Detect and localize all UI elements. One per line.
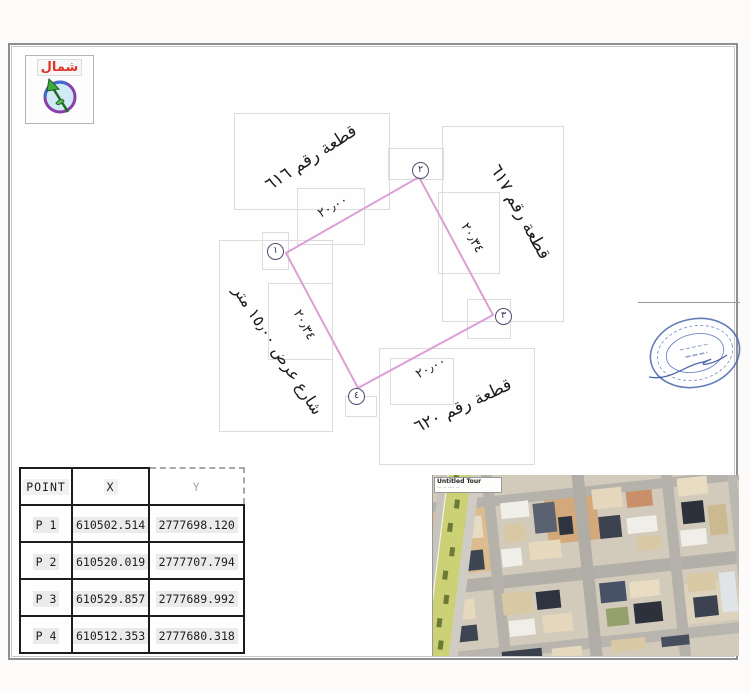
y-coordinate: 2777698.120	[149, 505, 244, 542]
table-row: P 1 610502.514 2777698.120	[20, 505, 244, 542]
north-indicator: شمال	[25, 55, 94, 124]
point-id: P 2	[20, 542, 72, 579]
column-header-y: Y	[149, 468, 244, 505]
table-row: P 3 610529.857 2777689.992	[20, 579, 244, 616]
map-label-note: ··· ·· ···· ··	[437, 486, 499, 492]
signature-line	[638, 302, 740, 303]
point-id: P 3	[20, 579, 72, 616]
official-stamp	[643, 311, 747, 395]
vertex-marker-1: ١	[267, 243, 284, 260]
vertex-marker-3: ٣	[495, 308, 512, 325]
y-coordinate: 2777707.794	[149, 542, 244, 579]
point-id: P 4	[20, 616, 72, 653]
survey-plan-document: شمال قطعة رقم ٦١٦ ٢٠٫٠٠ قطعة	[0, 0, 750, 693]
table-row: P 2 610520.019 2777707.794	[20, 542, 244, 579]
column-header-x: X	[72, 468, 149, 505]
compass-icon	[38, 76, 82, 118]
north-label: شمال	[37, 59, 83, 76]
x-coordinate: 610502.514	[72, 505, 149, 542]
column-header-point: POINT	[20, 468, 72, 505]
map-overlay-label: Untitled Tour ··· ·· ···· ··	[434, 477, 502, 493]
y-coordinate: 2777680.318	[149, 616, 244, 653]
vertex-marker-2: ٢	[412, 162, 429, 179]
x-coordinate: 610529.857	[72, 579, 149, 616]
point-id: P 1	[20, 505, 72, 542]
x-coordinate: 610512.353	[72, 616, 149, 653]
table-row: P 4 610512.353 2777680.318	[20, 616, 244, 653]
coordinates-table: POINT X Y P 1 610502.514 2777698.120 P 2…	[19, 467, 245, 654]
y-coordinate: 2777689.992	[149, 579, 244, 616]
x-coordinate: 610520.019	[72, 542, 149, 579]
drawing-frame: شمال قطعة رقم ٦١٦ ٢٠٫٠٠ قطعة	[8, 43, 738, 660]
table-header-row: POINT X Y	[20, 468, 244, 505]
vertex-marker-4: ٤	[348, 388, 365, 405]
satellite-image	[432, 475, 739, 656]
